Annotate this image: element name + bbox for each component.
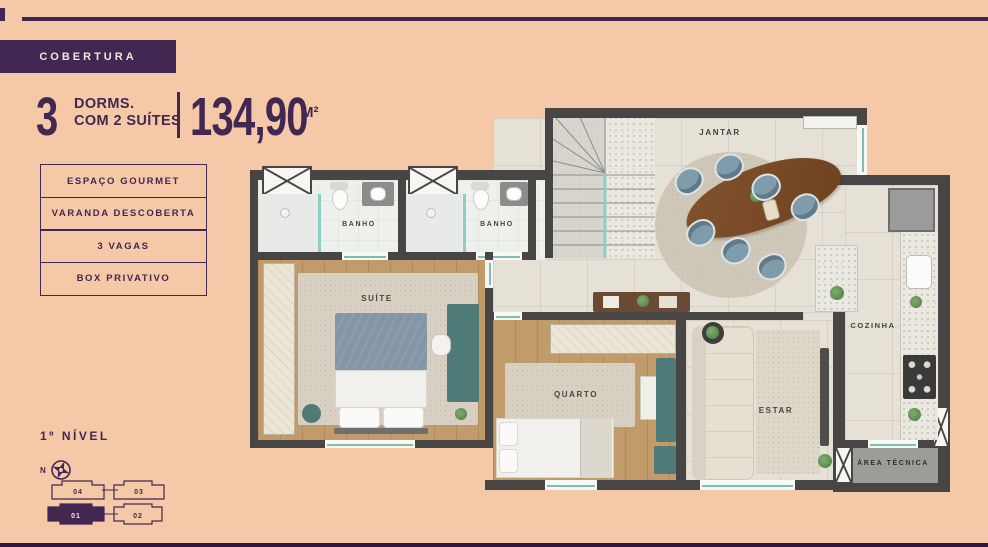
bath2-door-opening bbox=[476, 252, 522, 260]
wall-bath-right bbox=[528, 170, 536, 260]
bath1-door-opening bbox=[342, 252, 388, 260]
kitchen-fridge bbox=[888, 188, 935, 232]
console-plant bbox=[637, 295, 649, 307]
feature-label: ESPAÇO GOURMET bbox=[67, 176, 180, 187]
area-tecnica-label: ÁREA TÉCNICA bbox=[850, 460, 936, 467]
suite-pillow-right bbox=[383, 407, 424, 428]
suite-headboard bbox=[334, 428, 428, 434]
suite-bed-blanket bbox=[335, 313, 427, 371]
feature-espaco-gourmet: ESPAÇO GOURMET bbox=[40, 164, 207, 198]
cobertura-badge: COBERTURA bbox=[0, 40, 176, 73]
jantar-ac-box bbox=[803, 116, 857, 129]
compass-north-label: N bbox=[40, 466, 46, 475]
quarto-wardrobe bbox=[550, 324, 676, 354]
suite-desk-chair bbox=[431, 334, 451, 356]
estar-plant-2 bbox=[818, 454, 832, 468]
keyplan-unit-01-active: 01 bbox=[48, 504, 104, 524]
banho2-label: BANHO bbox=[466, 221, 528, 228]
bath1-toilet bbox=[330, 182, 348, 208]
bath2-sink bbox=[500, 182, 528, 206]
svg-text:04: 04 bbox=[73, 489, 83, 496]
wall-suite-left bbox=[250, 252, 258, 448]
dorms-label-line1: DORMS. bbox=[74, 96, 134, 112]
dorms-label-line2: COM 2 SUÍTES bbox=[74, 113, 181, 129]
keyplan: 04 03 01 02 bbox=[44, 477, 172, 527]
jantar-label: JANTAR bbox=[680, 128, 760, 137]
dorms-count: 3 bbox=[36, 90, 57, 144]
estar-label: ESTAR bbox=[746, 406, 806, 415]
cobertura-badge-label: COBERTURA bbox=[39, 51, 136, 63]
jantar-counter-island bbox=[815, 245, 858, 312]
feature-label: 3 VAGAS bbox=[97, 241, 149, 252]
wall-quarto-estar-top bbox=[485, 312, 803, 320]
corner-accent bbox=[0, 8, 5, 21]
area-tecnica-glass bbox=[868, 440, 918, 448]
estar-window bbox=[700, 480, 795, 490]
console-decor bbox=[659, 296, 677, 308]
kitchen-sink bbox=[906, 255, 932, 289]
bath1-shower bbox=[258, 194, 320, 252]
estar-sofa-back bbox=[692, 326, 706, 480]
feature-varanda-descoberta: VARANDA DESCOBERTA bbox=[40, 197, 207, 231]
wall-area-tecnica-bottom bbox=[845, 483, 950, 492]
bath2-x-window bbox=[408, 166, 458, 196]
bath1-shower-glass bbox=[318, 194, 321, 252]
feature-3-vagas: 3 VAGAS bbox=[40, 229, 207, 263]
feature-label: BOX PRIVATIVO bbox=[77, 273, 171, 284]
quarto-cabinet-upper bbox=[656, 358, 676, 442]
cozinha-label: COZINHA bbox=[842, 321, 904, 330]
feature-label: VARANDA DESCOBERTA bbox=[52, 208, 196, 219]
keyplan-unit-04: 04 bbox=[52, 481, 104, 499]
quarto-pillow-bottom bbox=[499, 449, 518, 473]
suite-label: SUÍTE bbox=[342, 294, 412, 303]
suite-window bbox=[325, 440, 415, 448]
jantar-right-window bbox=[857, 125, 867, 175]
wall-bath-left bbox=[250, 170, 258, 260]
quarto-window bbox=[545, 480, 597, 490]
svg-text:03: 03 bbox=[134, 489, 144, 496]
console-decor bbox=[603, 296, 619, 308]
bath1-sink bbox=[362, 182, 394, 206]
kitchen-stove bbox=[903, 355, 936, 399]
bath1-drain bbox=[280, 208, 290, 218]
feature-box-privativo: BOX PRIVATIVO bbox=[40, 262, 207, 296]
bath2-shower bbox=[406, 194, 462, 252]
brochure-page: COBERTURA 3 DORMS. COM 2 SUÍTES 134,90 M… bbox=[0, 0, 988, 547]
suite-plant bbox=[455, 408, 467, 420]
floorplan: BANHO BANHO SUÍTE QUARTO bbox=[250, 108, 950, 492]
estar-plant bbox=[706, 326, 719, 339]
estar-rug bbox=[756, 330, 820, 474]
title-separator bbox=[177, 92, 180, 138]
suite-door-opening bbox=[485, 260, 493, 288]
bath2-drain bbox=[426, 208, 436, 218]
island-plant bbox=[830, 286, 844, 300]
quarto-cabinet-lower bbox=[654, 446, 676, 474]
suite-bed-duvet bbox=[335, 370, 427, 408]
suite-side-table bbox=[302, 404, 321, 423]
banho1-label: BANHO bbox=[328, 221, 390, 228]
estar-tv-console bbox=[820, 348, 829, 446]
svg-text:02: 02 bbox=[133, 513, 143, 520]
wall-kitchen-top bbox=[837, 175, 950, 185]
suite-wardrobe bbox=[263, 263, 295, 435]
keyplan-unit-03: 03 bbox=[114, 481, 164, 499]
wall-quarto-estar-divider bbox=[676, 320, 686, 488]
kitchen-plant bbox=[910, 296, 922, 308]
console-sideboard bbox=[593, 292, 690, 312]
keyplan-unit-02: 02 bbox=[114, 504, 162, 524]
wall-bath-divider bbox=[398, 170, 406, 260]
bath2-toilet bbox=[471, 182, 489, 208]
svg-text:01: 01 bbox=[71, 513, 81, 520]
suite-pillow-left bbox=[339, 407, 380, 428]
quarto-bed-throw bbox=[580, 419, 612, 477]
top-divider-line bbox=[22, 17, 988, 21]
bath1-x-window bbox=[262, 166, 312, 196]
quarto-door-opening bbox=[494, 312, 522, 320]
quarto-pillow-top bbox=[499, 422, 518, 446]
suite-desk-cabinet bbox=[447, 304, 479, 402]
level-label: 1º NÍVEL bbox=[40, 429, 110, 443]
wall-stairs-left bbox=[545, 108, 553, 258]
staircase-steps bbox=[553, 115, 655, 258]
kitchen-plant-2 bbox=[908, 408, 921, 421]
staircase bbox=[553, 115, 655, 258]
bottom-divider-line bbox=[0, 543, 988, 547]
quarto-label: QUARTO bbox=[538, 390, 614, 399]
